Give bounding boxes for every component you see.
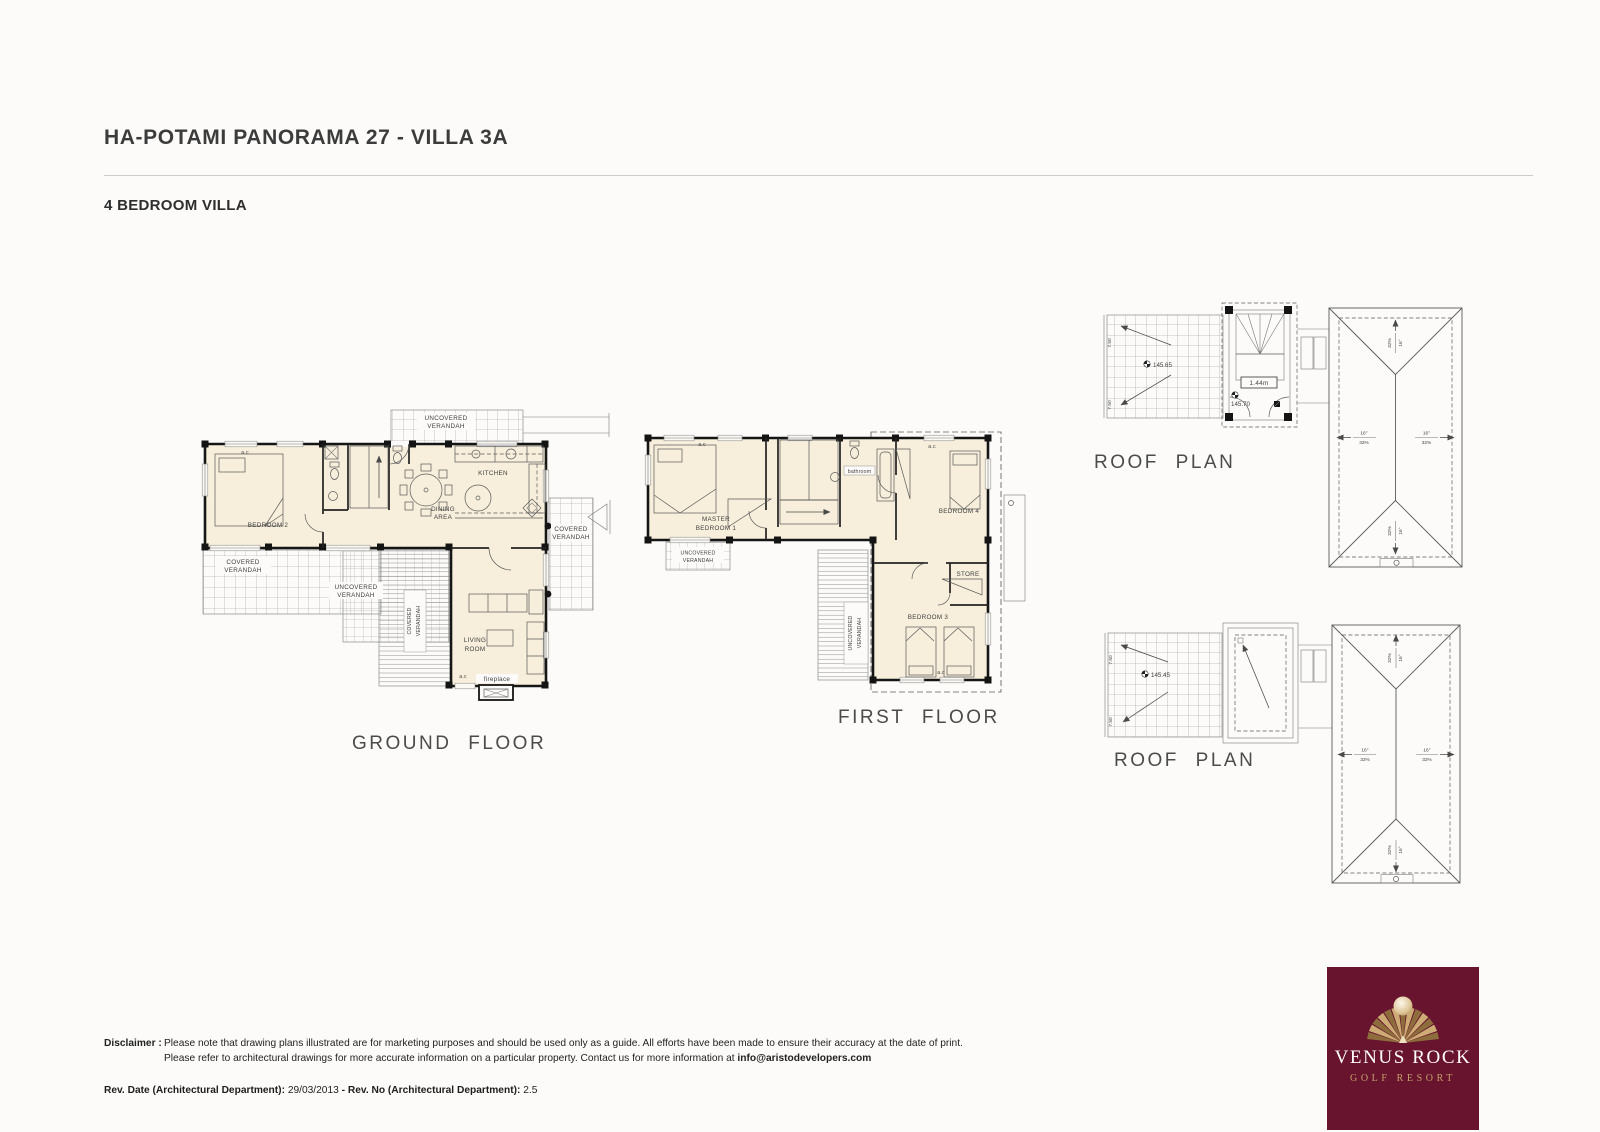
svg-text:16°: 16° xyxy=(1398,846,1404,853)
svg-text:VERANDAH: VERANDAH xyxy=(683,558,713,564)
svg-text:16°: 16° xyxy=(1398,339,1404,346)
roof-plan-1: 7.50 7.50 145.65 1.44m xyxy=(1083,293,1463,568)
title-divider xyxy=(104,175,1533,176)
store-label: STORE xyxy=(956,571,979,578)
level-value: 145.65 xyxy=(1153,362,1172,369)
svg-text:bathroom: bathroom xyxy=(848,469,872,475)
page-title: HA-POTAMI PANORAMA 27 - VILLA 3A xyxy=(104,126,508,150)
first-floor-title: FIRST FLOOR xyxy=(838,707,1000,729)
svg-text:COVERED: COVERED xyxy=(226,559,259,566)
uncovered-verandah-top: UNCOVERED VERANDAH xyxy=(391,410,609,444)
svg-text:1.44m: 1.44m xyxy=(1249,380,1268,387)
hip-roof: 32% 16° 32% 16° 16° 32% 16° 32% xyxy=(1332,625,1460,883)
bedroom3-label: BEDROOM 3 xyxy=(908,614,949,621)
dining-label: AREA xyxy=(434,514,453,521)
svg-text:32%: 32% xyxy=(1387,337,1393,347)
side-projection xyxy=(1004,495,1025,601)
ac-label: a.c xyxy=(937,670,945,676)
venus-rock-logo: VENUS ROCK GOLF RESORT xyxy=(1327,967,1479,1130)
roof-plan-1-title: ROOF PLAN xyxy=(1094,452,1235,474)
link-elements xyxy=(1297,329,1329,403)
svg-text:7.50: 7.50 xyxy=(1108,717,1114,727)
verandah-label: VERANDAH xyxy=(427,423,465,430)
svg-text:VERANDAH: VERANDAH xyxy=(857,618,863,648)
verandah-label: UNCOVERED xyxy=(425,415,468,422)
svg-text:16°: 16° xyxy=(1398,654,1404,661)
covered-verandah-pergola: COVERED VERANDAH xyxy=(379,550,451,686)
pergola-roof: 7.50 7.50 145.65 xyxy=(1104,315,1223,418)
uncovered-verandah-mid-label: UNCOVERED VERANDAH xyxy=(329,582,383,599)
svg-text:VERANDAH: VERANDAH xyxy=(224,567,262,574)
svg-text:16°: 16° xyxy=(1423,431,1430,437)
svg-text:VERANDAH: VERANDAH xyxy=(337,592,375,599)
svg-text:UNCOVERED: UNCOVERED xyxy=(335,584,378,591)
svg-text:32%: 32% xyxy=(1387,844,1393,854)
stair-dim-label: 1.44m xyxy=(1241,377,1277,388)
page-subtitle: 4 BEDROOM VILLA xyxy=(104,197,247,214)
bedroom2-label: BEDROOM 2 xyxy=(248,522,289,529)
svg-text:7.50: 7.50 xyxy=(1107,400,1113,410)
living-label: LIVING xyxy=(464,637,486,644)
roof-plan-2-title: ROOF PLAN xyxy=(1114,750,1255,772)
slope-top: 32% 16° xyxy=(1387,635,1404,668)
svg-text:UNCOVERED: UNCOVERED xyxy=(848,615,854,650)
disclaimer-label: Disclaimer : xyxy=(104,1037,164,1066)
ac-label: a.c xyxy=(698,442,706,448)
ac-label: a.c xyxy=(459,674,467,680)
logo-name: VENUS ROCK xyxy=(1335,1047,1472,1069)
master-label: BEDROOM 1 xyxy=(696,525,737,532)
brochure-page: HA-POTAMI PANORAMA 27 - VILLA 3A 4 BEDRO… xyxy=(0,0,1600,1132)
disclaimer-text: Please note that drawing plans illustrat… xyxy=(164,1037,963,1066)
svg-text:16°: 16° xyxy=(1361,748,1368,754)
bedroom4-label: BEDROOM 4 xyxy=(939,508,980,515)
bathroom-label: bathroom xyxy=(844,466,875,475)
uncovered-verandah-small: UNCOVERED VERANDAH xyxy=(666,542,730,570)
ac-label: a.c xyxy=(241,450,249,456)
svg-text:UNCOVERED: UNCOVERED xyxy=(681,551,716,557)
svg-text:32%: 32% xyxy=(1387,525,1393,535)
slope-right: 16° 32% xyxy=(1415,431,1454,447)
first-floor-plan: UNCOVERED VERANDAH UNCOVERED VERANDAH xyxy=(628,415,1028,705)
fireplace: fireplace xyxy=(476,674,518,700)
ground-floor-plan: UNCOVERED VERANDAH COVERED VERANDAH COVE… xyxy=(193,398,613,733)
hip-roof: 32% 16° 32% 16° 16° 32% 16° 32% xyxy=(1329,308,1462,567)
pergola-roof: 7.50 7.50 145.45 xyxy=(1105,633,1222,737)
uncovered-verandah-pergola: UNCOVERED VERANDAH xyxy=(818,550,868,680)
ac-label: a.c xyxy=(928,444,936,450)
revision-line: Rev. Date (Architectural Department): 29… xyxy=(104,1085,537,1096)
stair-roof: 1.44m 145.70 xyxy=(1222,303,1297,427)
slope-bottom: 32% 16° xyxy=(1387,521,1404,554)
kitchen-label: KITCHEN xyxy=(478,470,508,477)
svg-text:7.50: 7.50 xyxy=(1107,338,1113,348)
ground-floor-title: GROUND FLOOR xyxy=(352,733,546,755)
svg-text:COVERED: COVERED xyxy=(554,526,587,533)
svg-text:7.50: 7.50 xyxy=(1108,655,1114,665)
verandah-label: COVERED xyxy=(407,607,413,634)
slope-right: 16° 32% xyxy=(1416,748,1454,764)
level-value: 145.45 xyxy=(1151,672,1170,679)
slope-left: 16° 32% xyxy=(1337,431,1376,447)
master-label: MASTER xyxy=(702,516,730,523)
slope-top: 32% 16° xyxy=(1387,320,1404,353)
flat-roof-box xyxy=(1223,623,1298,743)
logo-subtitle: GOLF RESORT xyxy=(1350,1073,1456,1084)
link-elements xyxy=(1298,645,1332,728)
svg-text:16°: 16° xyxy=(1360,431,1367,437)
covered-verandah-right: COVERED VERANDAH xyxy=(545,498,610,610)
svg-text:16°: 16° xyxy=(1398,527,1404,534)
verandah-label: VERANDAH xyxy=(416,606,422,636)
covered-verandah-left-label: COVERED VERANDAH xyxy=(215,556,271,574)
living-label: ROOM xyxy=(465,646,486,653)
svg-text:16°: 16° xyxy=(1423,748,1430,754)
svg-text:32%: 32% xyxy=(1422,440,1432,446)
svg-text:VERANDAH: VERANDAH xyxy=(552,534,590,541)
contact-email: info@aristodevelopers.com xyxy=(737,1053,871,1064)
roof-plan-2: 7.50 7.50 145.45 xyxy=(1083,600,1463,888)
level-value: 145.70 xyxy=(1231,401,1250,408)
slope-left: 16° 32% xyxy=(1338,748,1376,764)
slope-bottom: 32% 16° xyxy=(1387,840,1404,872)
dining-label: DINING xyxy=(431,506,455,513)
svg-text:32%: 32% xyxy=(1422,757,1432,763)
svg-text:32%: 32% xyxy=(1360,757,1370,763)
disclaimer: Disclaimer : Please note that drawing pl… xyxy=(104,1037,1444,1066)
fireplace-label: fireplace xyxy=(484,676,511,683)
svg-text:32%: 32% xyxy=(1387,652,1393,662)
svg-text:32%: 32% xyxy=(1359,440,1369,446)
golf-ball-fan-icon xyxy=(1343,991,1463,1045)
